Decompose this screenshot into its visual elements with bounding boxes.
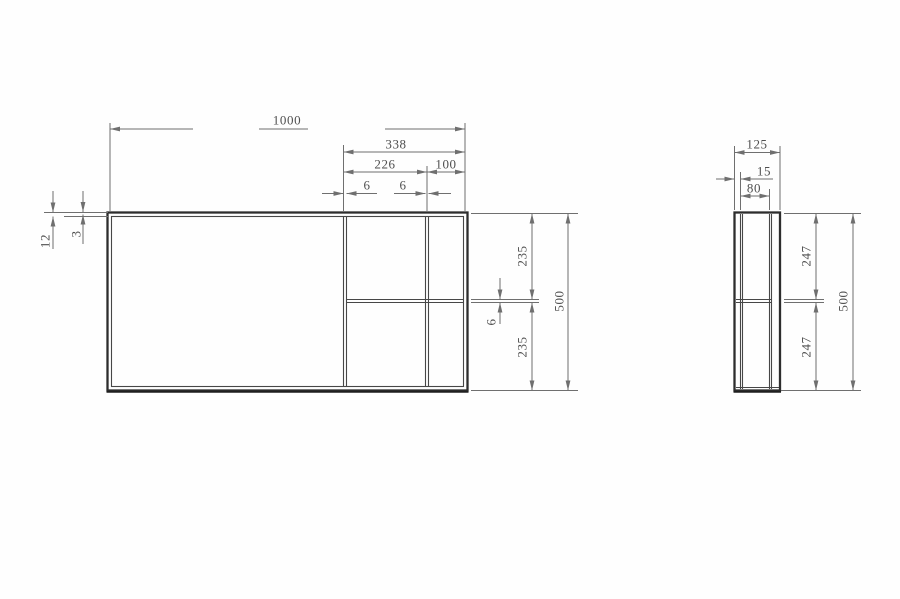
side-view-internal-lines [736, 214, 772, 389]
front-view-internal-dividers [344, 217, 464, 387]
dim-label-front-right-inner-width: 226 [374, 158, 395, 171]
dim-label-side-overall-height: 500 [837, 290, 850, 311]
dim-label-front-overall-width: 1000 [273, 114, 301, 127]
dim-label-front-shelf-thickness: 6 [485, 318, 498, 325]
dim-label-side-lower-height: 247 [800, 336, 813, 357]
dim-label-front-divider-right-thickness: 6 [399, 179, 406, 192]
dim-label-front-lower-cell-height: 235 [516, 336, 529, 357]
dim-label-front-right-end-width: 100 [435, 158, 456, 171]
dim-label-front-top-gap: 3 [70, 230, 83, 237]
dim-label-front-overall-height: 500 [553, 290, 566, 311]
side-view-dimension-lines [716, 153, 853, 391]
front-view-extension-lines [44, 123, 578, 391]
cabinet-dimension-drawing [0, 0, 900, 599]
dim-label-side-inner-depth: 80 [747, 182, 761, 195]
technical-drawing-canvas: 1000 338 226 100 6 6 12 3 235 6 235 500 … [0, 0, 900, 599]
dim-label-front-upper-cell-height: 235 [516, 245, 529, 266]
dim-label-front-right-section-width: 338 [385, 138, 406, 151]
dim-label-side-overall-depth: 125 [746, 138, 767, 151]
dim-label-side-front-panel-thickness: 15 [757, 165, 771, 178]
dim-label-front-divider-left-thickness: 6 [363, 179, 370, 192]
dim-label-front-top-panel-thickness: 12 [39, 234, 52, 248]
front-view-dimension-lines [53, 129, 568, 391]
dim-label-side-upper-height: 247 [800, 245, 813, 266]
